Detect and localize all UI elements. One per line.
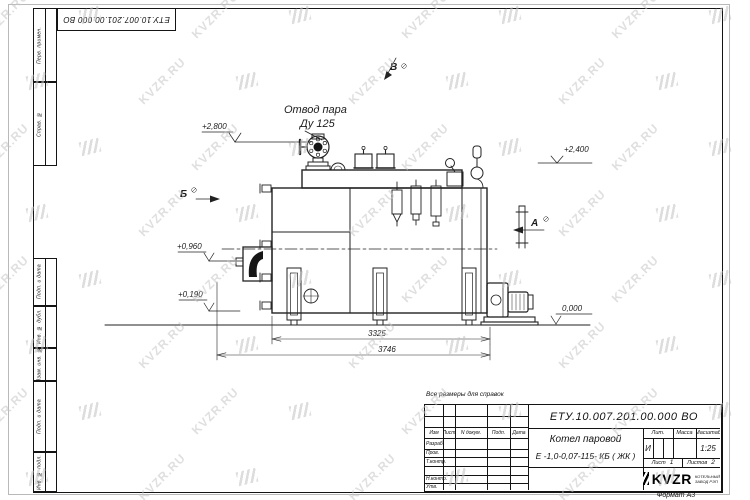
row-razrab: Разраб.: [426, 438, 456, 449]
mass-label: Масса: [673, 428, 696, 438]
feed-valve-and-gauge: [446, 146, 484, 188]
sight-glass: [303, 289, 319, 303]
lit-value: И: [643, 438, 653, 458]
water-level-gauges: [392, 180, 441, 226]
row-nkontr: Н.контр.: [426, 475, 456, 483]
scale-label: Масштаб: [696, 428, 720, 438]
elevation-0960: +0,960: [177, 242, 202, 251]
scale-value: 1:25: [696, 438, 720, 458]
company-logo: KVZR КОТЕЛЬНЫЙ ЗАВОД РЭП: [643, 467, 720, 490]
kvzr-logo-subtext: КОТЕЛЬНЫЙ ЗАВОД РЭП: [695, 474, 720, 484]
view-label-b: Б: [180, 189, 187, 200]
col-podp: Подп.: [487, 427, 510, 438]
reference-note: Все размеры для справок: [426, 391, 504, 398]
product-name-line1: Котел паровой: [528, 430, 643, 448]
fan-unit: [481, 283, 538, 325]
boiler-body: [222, 170, 497, 313]
burner: [236, 247, 272, 281]
view-label-a: А: [530, 218, 538, 229]
safety-valves: [354, 146, 395, 168]
steam-outlet-label-2: Ду 125: [298, 118, 336, 130]
row-tkontr: Т.контр.: [426, 457, 456, 466]
dimension-3746: [217, 282, 490, 360]
sheet-label: Лист: [652, 460, 666, 466]
document-designation: ЕТУ.10.007.201.00.000 ВО: [528, 405, 720, 428]
sheet-cell: Лист 1: [643, 458, 682, 467]
format-label: Формат А3: [630, 492, 722, 499]
sheets-cell: Листов 2: [682, 458, 720, 467]
manhole-dome: [331, 163, 345, 170]
col-izm: Изм: [425, 427, 443, 438]
elevation-2400: +2,400: [564, 145, 589, 154]
pressure-gauge-siphon: [471, 167, 483, 179]
upper-drum-band: [302, 170, 462, 188]
kvzr-logo-icon: [643, 472, 649, 485]
title-block: Изм Лист N докум. Подп. Дата Разраб. Про…: [424, 404, 722, 492]
lit-label: Лит.: [643, 428, 673, 438]
left-face-nozzles: [260, 184, 271, 310]
col-list: Лист: [443, 427, 455, 438]
elevation-0190: +0,190: [178, 290, 203, 299]
kvzr-logo-text: KVZR: [652, 471, 692, 487]
elevation-0000: 0,000: [562, 304, 583, 313]
sheets-value: 2: [711, 459, 715, 466]
view-label-v: В: [390, 62, 397, 73]
view-arrow-b: [192, 188, 220, 203]
product-name-line2: Е -1,0-0,07-115- КБ ( ЖК ): [528, 447, 643, 465]
drawing-sheet: ЕТУ.10.007.201.00.000 ВО Перв. примен. С…: [0, 0, 750, 500]
elevation-2800: +2,800: [202, 122, 227, 131]
sheets-label: Листов: [687, 460, 707, 466]
steam-outlet-label-1: Отвод пара: [284, 104, 347, 116]
fan-motor: [508, 292, 528, 312]
col-ndok: N докум.: [455, 427, 487, 438]
steam-outlet-valve: [300, 134, 330, 170]
row-utv: Утв.: [426, 483, 456, 490]
sheet-value: 1: [670, 459, 674, 466]
col-data: Дата: [510, 427, 528, 438]
support-legs: [287, 268, 476, 325]
dim-text-3325: 3325: [368, 329, 386, 338]
row-prov: Пров.: [426, 449, 456, 457]
dim-text-3746: 3746: [378, 345, 396, 354]
